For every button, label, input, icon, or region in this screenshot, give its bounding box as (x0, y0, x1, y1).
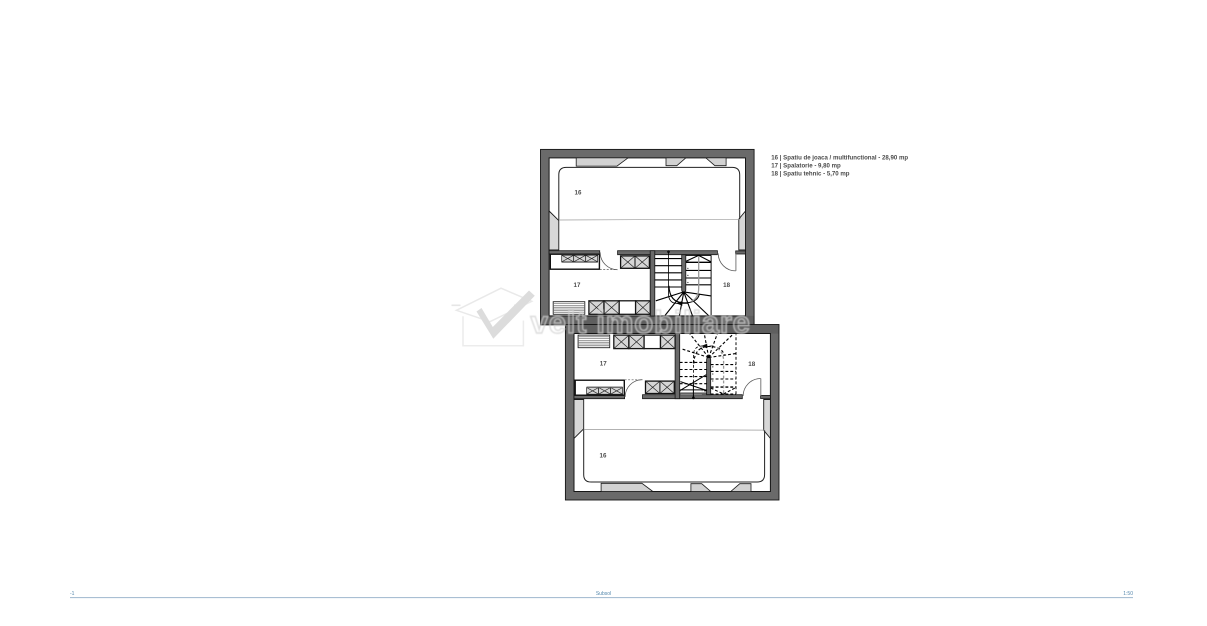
svg-text:16 | Spatiu de joaca / multifu: 16 | Spatiu de joaca / multifunctional -… (771, 155, 908, 162)
svg-text:16: 16 (575, 189, 582, 196)
svg-text:18 | Spatiu tehnic - 5,70 mp: 18 | Spatiu tehnic - 5,70 mp (771, 171, 850, 178)
svg-text:velt imobiliare: velt imobiliare (531, 304, 751, 340)
svg-text:1:50: 1:50 (1123, 591, 1133, 597)
svg-text:17 | Spalatorie - 9,80 mp: 17 | Spalatorie - 9,80 mp (771, 163, 841, 170)
svg-text:16: 16 (600, 453, 607, 460)
svg-text:17: 17 (574, 282, 581, 289)
svg-text:17: 17 (600, 360, 607, 367)
svg-text:18: 18 (748, 361, 755, 368)
svg-text:18: 18 (723, 282, 730, 289)
svg-text:-1: -1 (70, 591, 75, 597)
svg-text:Subsol: Subsol (596, 591, 611, 597)
